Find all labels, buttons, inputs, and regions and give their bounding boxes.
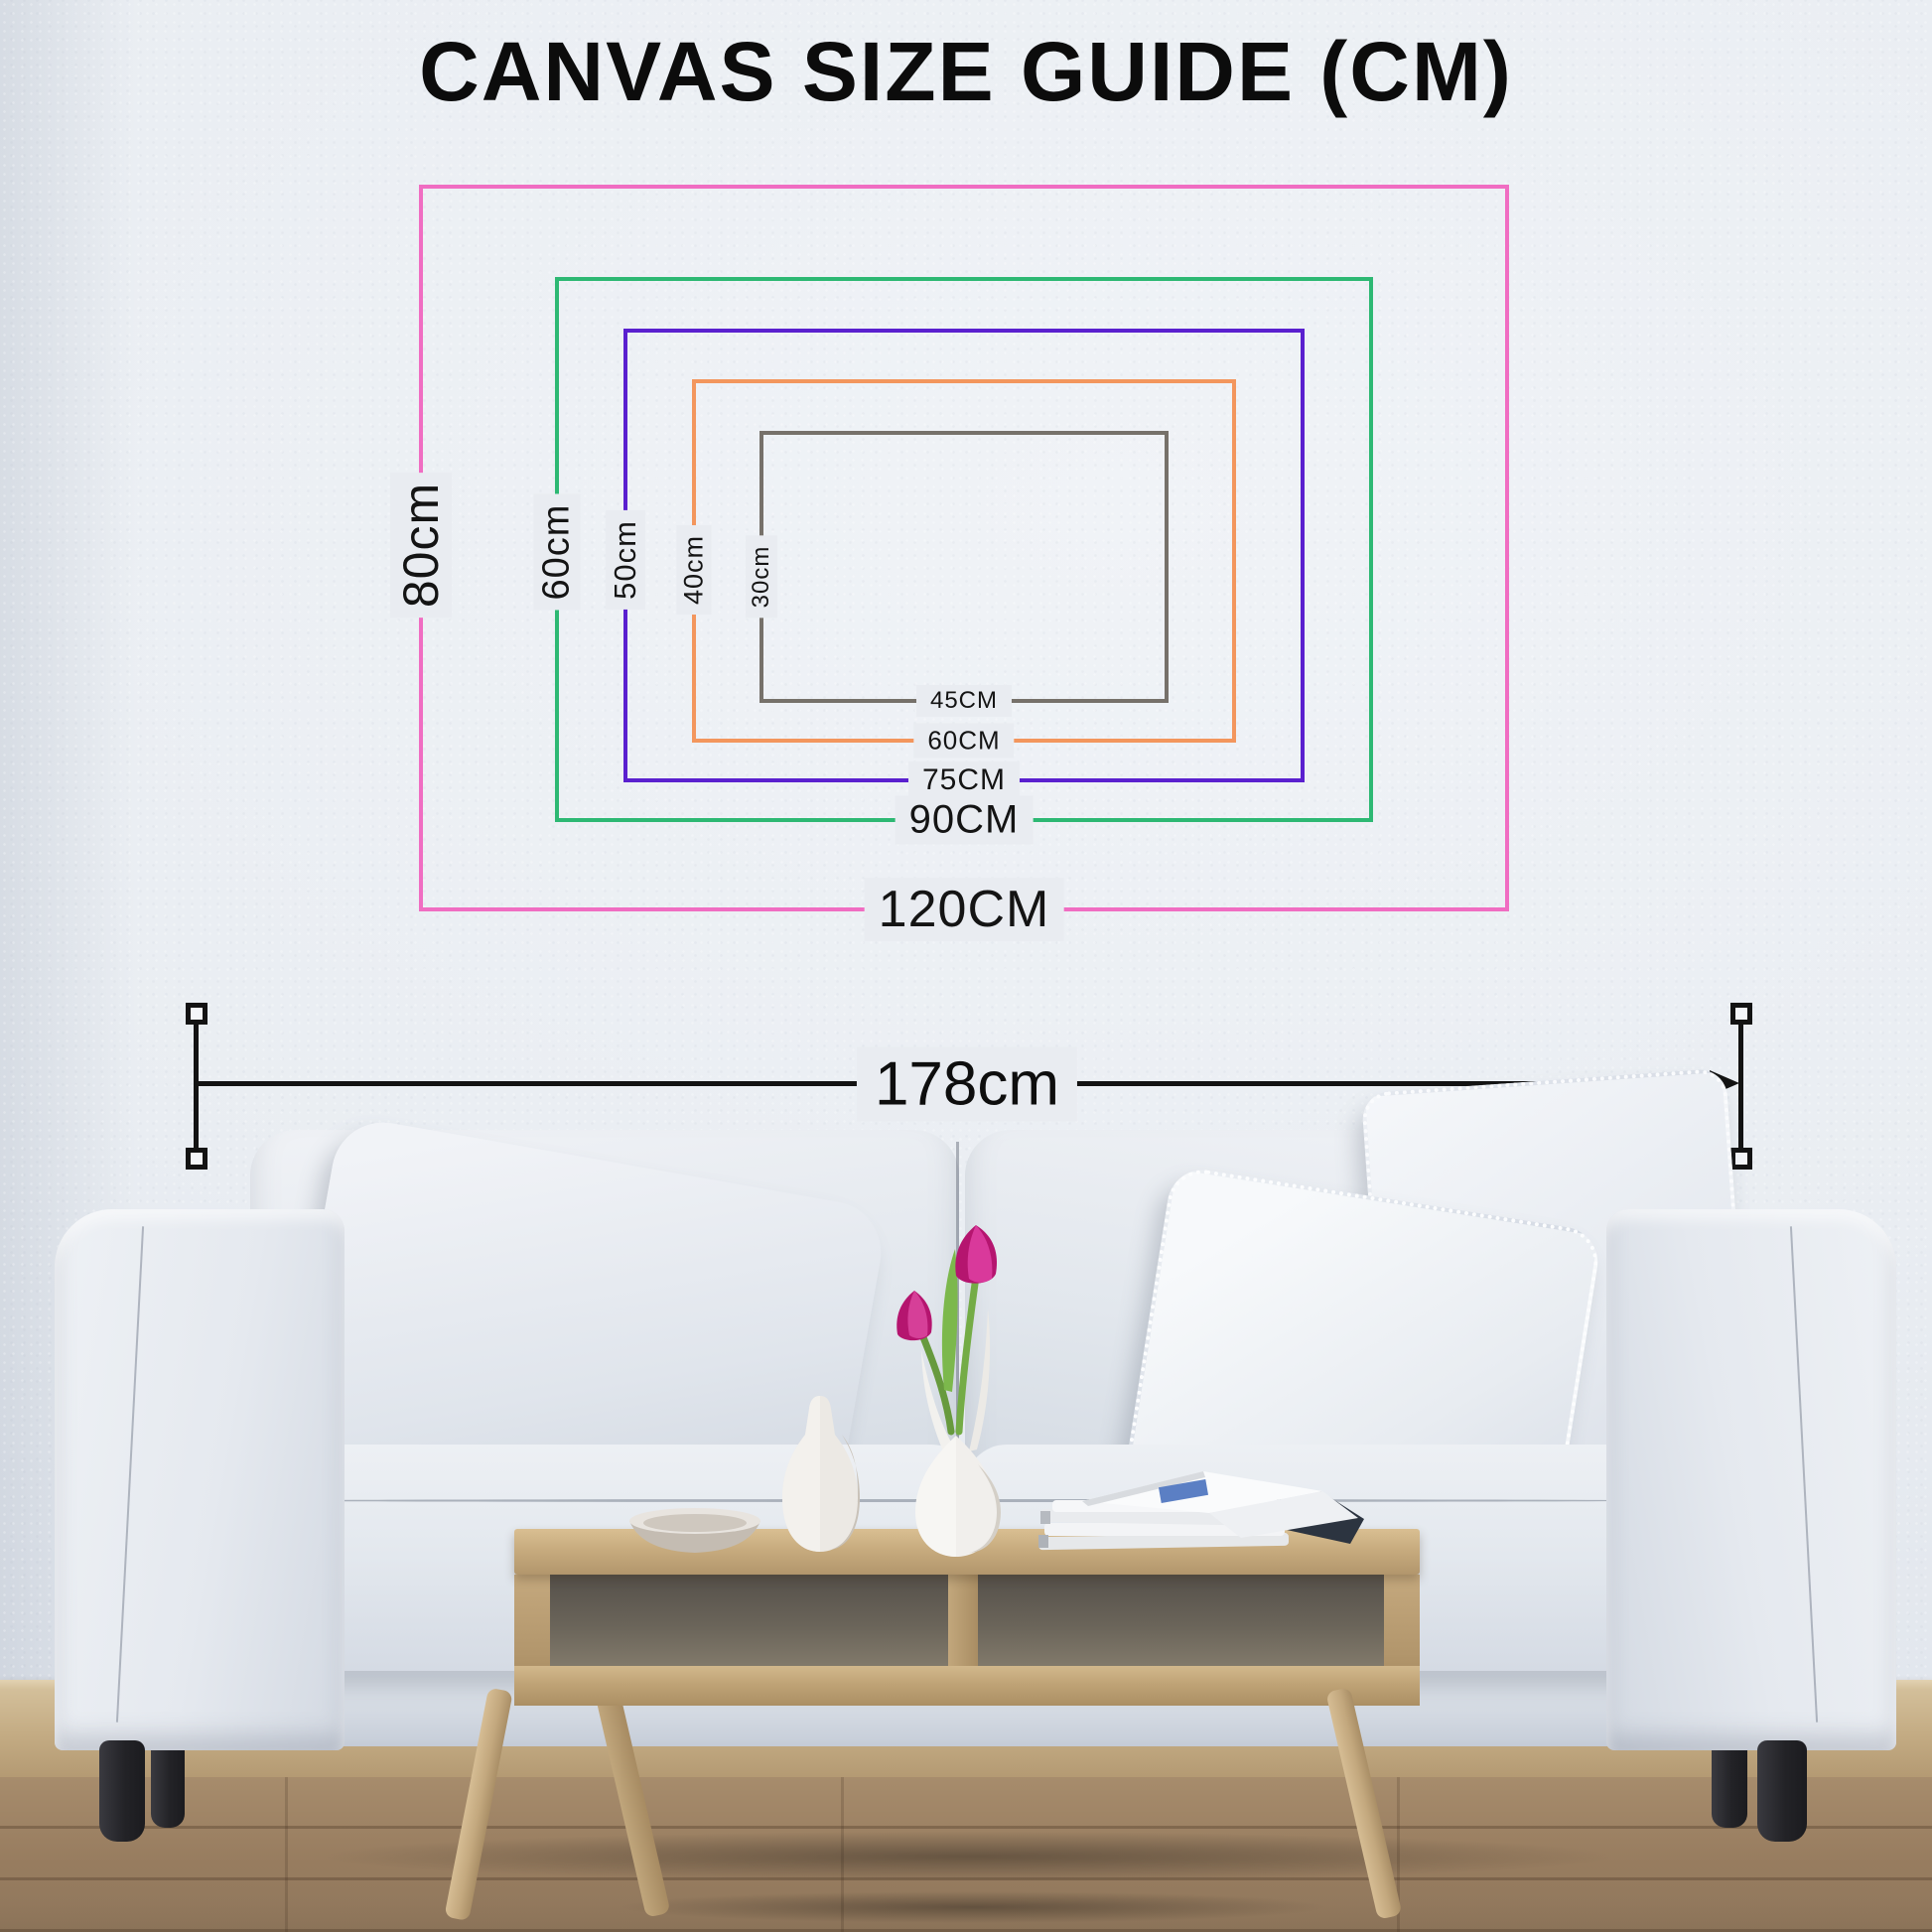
bottle-vase [782,1396,860,1552]
sofa-leg-back-right [1712,1740,1747,1828]
measurement-end-bar-left [194,1018,199,1152]
canvas-width-label-90x60: 90CM [896,796,1034,845]
sofa-arm-right [1606,1209,1896,1750]
canvas-width-label-45x30: 45CM [916,685,1012,717]
canvas-width-label-60x40: 60CM [913,724,1014,759]
sofa-leg-front-right [1757,1740,1807,1842]
table-bottom-shelf [514,1666,1420,1706]
table-center-divider [948,1575,978,1670]
canvas-height-label-75x50: 50cm [606,510,645,610]
decorative-bowl [629,1508,760,1553]
measurement-handle-top-left [186,1003,207,1025]
canvas-size-guide-page: { "title": "CANVAS SIZE GUIDE (CM)", "ca… [0,0,1932,1932]
table-decor [556,1211,1449,1569]
canvas-height-label-90x60: 60cm [534,494,581,611]
measurement-handle-bottom-left [186,1148,207,1170]
canvas-width-label-120x80: 120CM [865,878,1064,941]
sofa-arm-left [55,1209,345,1750]
canvas-height-label-45x30: 30cm [746,536,777,619]
measurement-handle-bottom-right [1730,1148,1752,1170]
measurement-label: 178cm [857,1047,1077,1122]
canvas-height-label-60x40: 40cm [676,525,711,615]
canvas-height-label-120x80: 80cm [390,473,452,618]
sofa-leg-back-left [151,1740,185,1828]
canvas-width-label-75x50: 75CM [908,761,1020,799]
measurement-end-bar-right [1738,1018,1743,1152]
sofa-floor-shadow [69,1822,1866,1891]
sofa-leg-front-left [99,1740,145,1842]
canvas-rect-45x30 [759,431,1169,703]
page-title: CANVAS SIZE GUIDE (CM) [0,24,1932,120]
table-floor-shadow [467,1884,1479,1930]
measurement-handle-top-right [1730,1003,1752,1025]
